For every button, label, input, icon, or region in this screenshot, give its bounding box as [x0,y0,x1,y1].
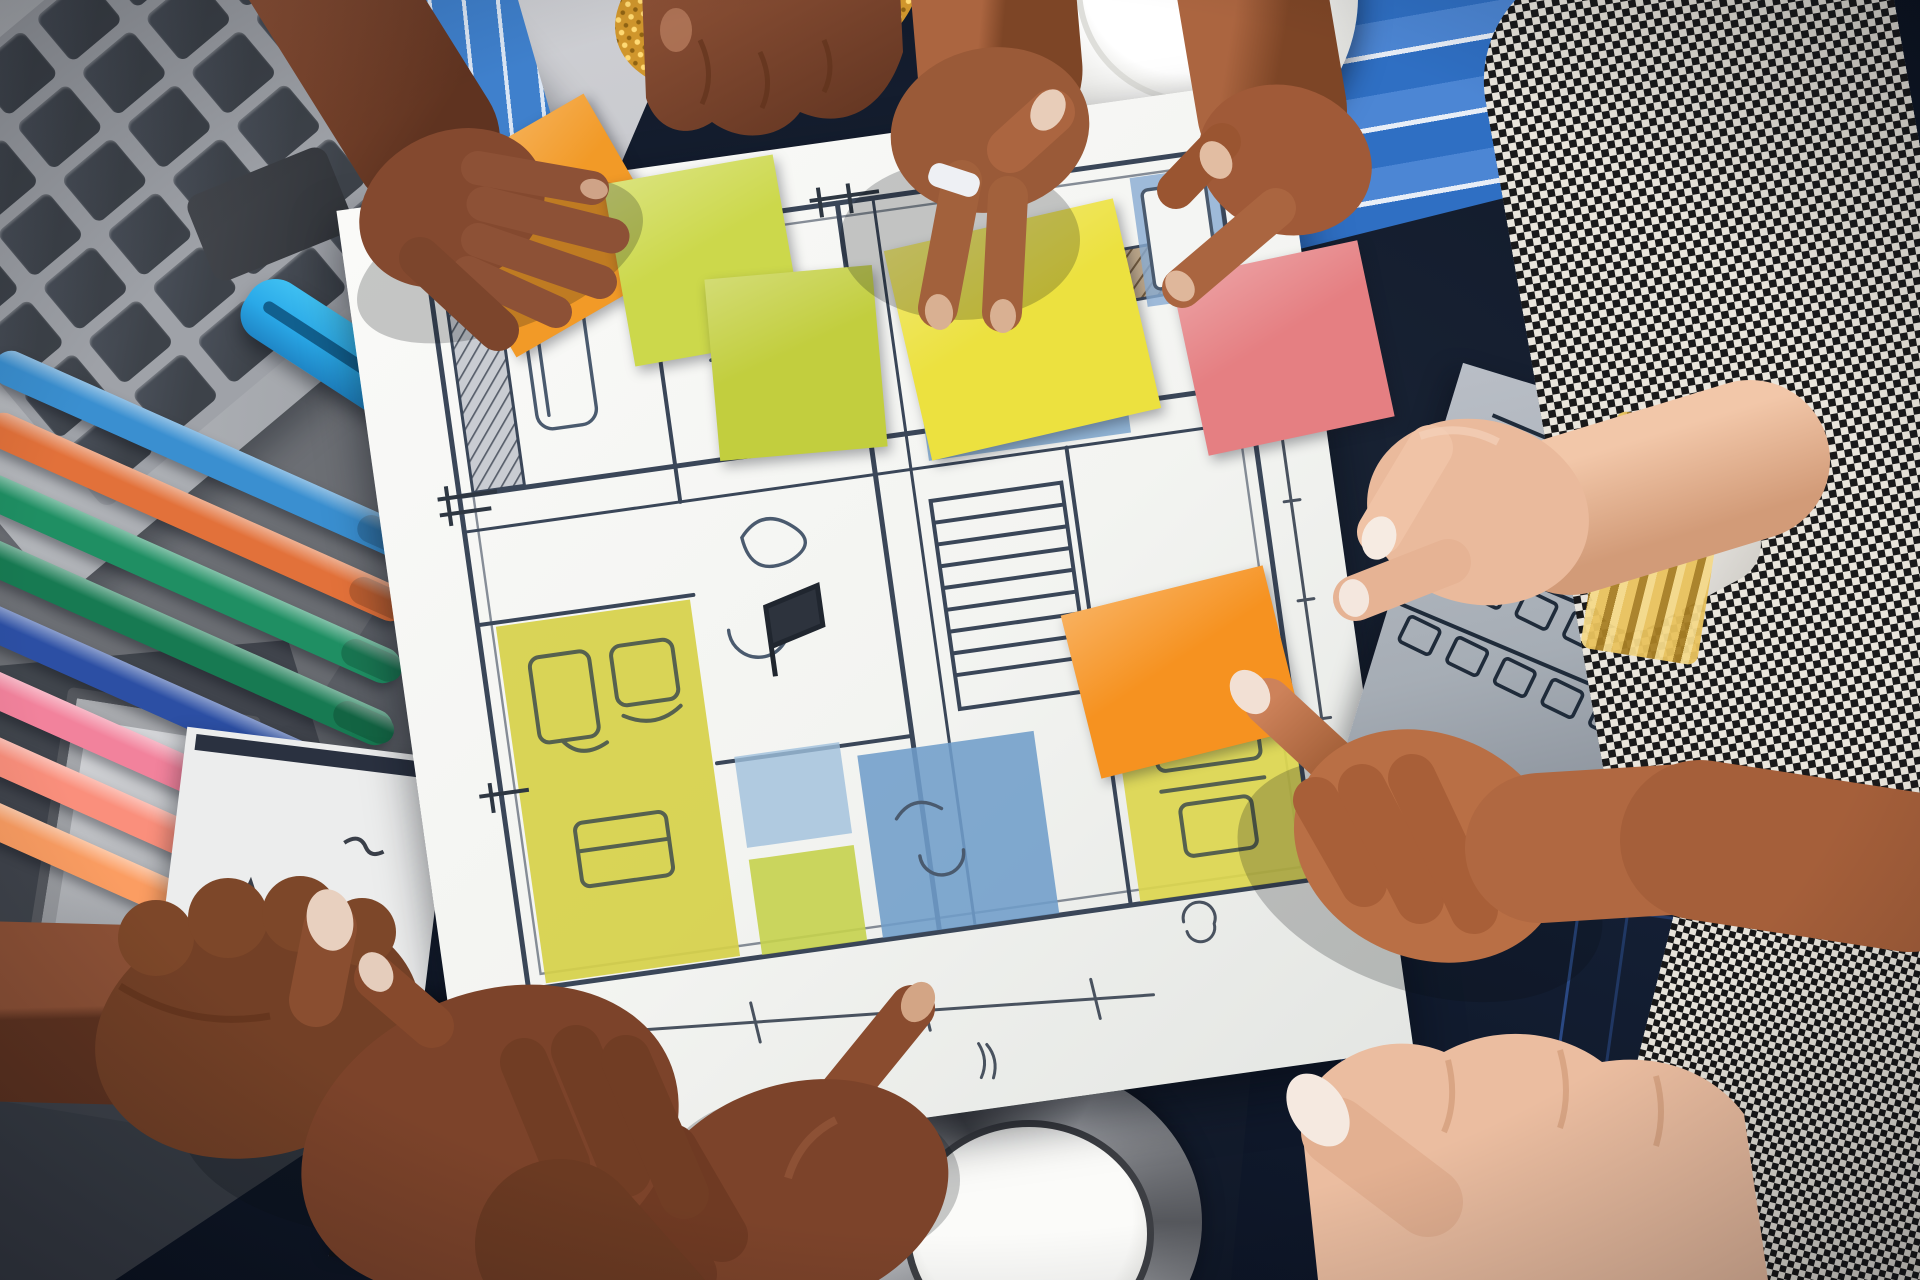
hand-resting-bottom-right [1273,1034,1768,1280]
hand-top-left [300,0,612,330]
photo-scene [0,0,1920,1280]
hand-top-center-fist [642,0,903,135]
hands-clasped-bottom-left [0,872,728,1280]
hand-top-right [1159,0,1391,307]
hands-layer [0,0,1920,1280]
hand-right-pinch [1336,396,1750,629]
